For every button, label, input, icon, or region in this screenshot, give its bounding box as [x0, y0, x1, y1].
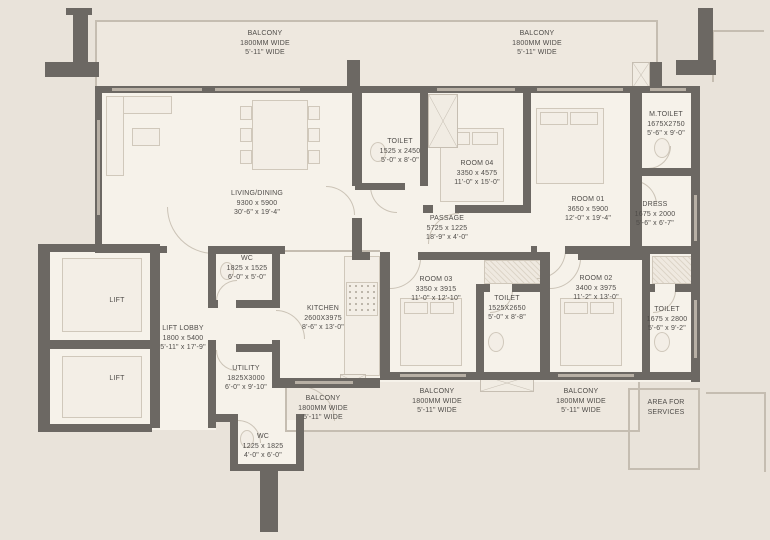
furniture-pillow [570, 112, 598, 125]
furniture-coffee-table [132, 128, 160, 146]
adjacent-line [706, 392, 766, 394]
wall-segment [230, 414, 238, 470]
wall-segment [630, 86, 642, 176]
wall-segment [208, 300, 218, 308]
wall-segment [423, 205, 433, 213]
furniture-pillow [564, 302, 588, 314]
wall-segment [642, 284, 655, 292]
label-passage: PASSAGE5725 x 122518'-9" x 4'-0" [426, 214, 468, 243]
label-kitchen: KITCHEN2600X39758'-6" x 13'-0" [302, 304, 344, 333]
label-room03: ROOM 033350 x 391511'-0" x 12'-10" [411, 275, 461, 304]
wall-segment [698, 8, 713, 62]
furniture-chair [308, 128, 320, 142]
wall-segment [418, 252, 482, 260]
wall-segment [642, 168, 700, 176]
wardrobe-xbox [428, 94, 458, 148]
label-m-toilet: M.TOILET1675X27505'-6" x 9'-0" [647, 110, 685, 139]
wall-segment [455, 205, 523, 213]
wall-segment [355, 183, 405, 190]
wardrobe-hatch [484, 260, 542, 284]
wall-segment [675, 284, 700, 292]
label-utility: UTILITY1825X30006'-0" x 9'-10" [225, 364, 267, 393]
services-outline [628, 468, 700, 470]
window [400, 374, 466, 377]
furniture-pillow [540, 112, 568, 125]
label-wc-mid: WC1825 x 15256'-0" x 5'-0" [227, 254, 268, 283]
wall-segment [420, 86, 428, 186]
label-toilet-mid: TOILET1525X26505'-0" x 8'-8" [488, 294, 526, 323]
services-outline [628, 388, 630, 470]
furniture-pillow [430, 302, 454, 314]
furniture-pillow [472, 132, 498, 145]
furniture-chair [308, 106, 320, 120]
wall-segment [150, 244, 160, 428]
label-balcony-bottom-right: BALCONY1800MM WIDE5'-11" WIDE [556, 387, 606, 416]
wall-segment [352, 86, 362, 186]
label-room01: ROOM 013650 x 590012'-0" x 19'-4" [565, 195, 611, 224]
toilet-fixture [654, 332, 670, 352]
label-lift-top: LIFT [109, 296, 124, 306]
adjacent-line [712, 30, 764, 32]
window [215, 88, 300, 91]
window [558, 374, 634, 377]
wall-segment [642, 246, 700, 254]
label-room04: ROOM 043350 x 457511'-0" x 15'-0" [454, 159, 500, 188]
window [694, 300, 697, 358]
wall-segment [236, 300, 280, 308]
wall-segment [362, 252, 370, 260]
wall-segment [73, 8, 88, 66]
label-wc-bottom: WC1225 x 18254'-0" x 6'-0" [243, 432, 284, 461]
furniture-dining-table [252, 100, 308, 170]
wall-segment [523, 86, 531, 213]
wall-segment [540, 252, 550, 380]
wall-segment [482, 252, 544, 260]
window [537, 88, 623, 91]
window [295, 381, 353, 384]
services-outline [628, 388, 700, 390]
window [694, 195, 697, 241]
wall-segment [38, 424, 152, 432]
wall-segment [676, 60, 716, 75]
parapet-line [285, 430, 640, 432]
wall-segment [38, 244, 50, 432]
wall-segment [50, 340, 150, 349]
lift-car-bottom [62, 356, 142, 418]
toilet-fixture [488, 332, 504, 352]
parapet-line [95, 20, 658, 22]
lift-car-top [62, 258, 142, 332]
wall-segment [578, 252, 642, 260]
label-balcony-bottom-mid: BALCONY1800MM WIDE5'-11" WIDE [412, 387, 462, 416]
label-dress: DRESS1675 x 20005'-6" x 6'-7" [635, 200, 676, 229]
wall-segment [260, 470, 278, 532]
label-toilet-right: TOILET1675 x 28005'-6" x 9'-2" [647, 305, 688, 334]
wall-segment [208, 246, 216, 308]
label-balcony-bottom-left: BALCONY1800MM WIDE5'-11" WIDE [298, 394, 348, 423]
wall-segment [476, 284, 484, 380]
window [437, 88, 515, 91]
label-balcony-top-left: BALCONY1800MM WIDE5'-11" WIDE [240, 29, 290, 58]
wall-segment [38, 244, 152, 252]
adjacent-line [764, 392, 766, 472]
furniture-kitchen-counter [344, 256, 380, 376]
parapet-line [285, 388, 287, 430]
wall-segment [650, 62, 662, 88]
furniture-sofa [106, 96, 124, 176]
floor-plan: BALCONY1800MM WIDE5'-11" WIDE BALCONY180… [0, 0, 770, 540]
wall-segment [347, 60, 360, 88]
planter-xbox [632, 62, 650, 88]
label-toilet-room04: TOILET1525 x 24505'-0" x 8'-0" [380, 137, 421, 166]
label-lift-lobby: LIFT LOBBY1800 x 54005'-11" x 17'-9" [160, 324, 206, 353]
label-area-for-services: AREA FORSERVICES [648, 398, 685, 417]
wall-segment [45, 62, 99, 77]
services-outline [698, 388, 700, 470]
label-room02: ROOM 023400 x 397511'-2" x 13'-0" [573, 274, 619, 303]
furniture-pillow [404, 302, 428, 314]
furniture-hob [346, 282, 378, 316]
label-lift-bottom: LIFT [109, 374, 124, 384]
label-balcony-top-right: BALCONY1800MM WIDE5'-11" WIDE [512, 29, 562, 58]
wall-segment [476, 284, 490, 292]
wall-segment [352, 218, 362, 260]
window [112, 88, 202, 91]
furniture-chair [308, 150, 320, 164]
window [97, 120, 100, 215]
balcony-top-area [95, 20, 658, 86]
furniture-chair [240, 150, 252, 164]
wall-segment [380, 252, 390, 380]
furniture-chair [240, 106, 252, 120]
furniture-chair [240, 128, 252, 142]
window [650, 88, 686, 91]
furniture-pillow [590, 302, 614, 314]
label-living-dining: LIVING/DINING9300 x 590030'-6" x 19'-4" [231, 189, 283, 218]
